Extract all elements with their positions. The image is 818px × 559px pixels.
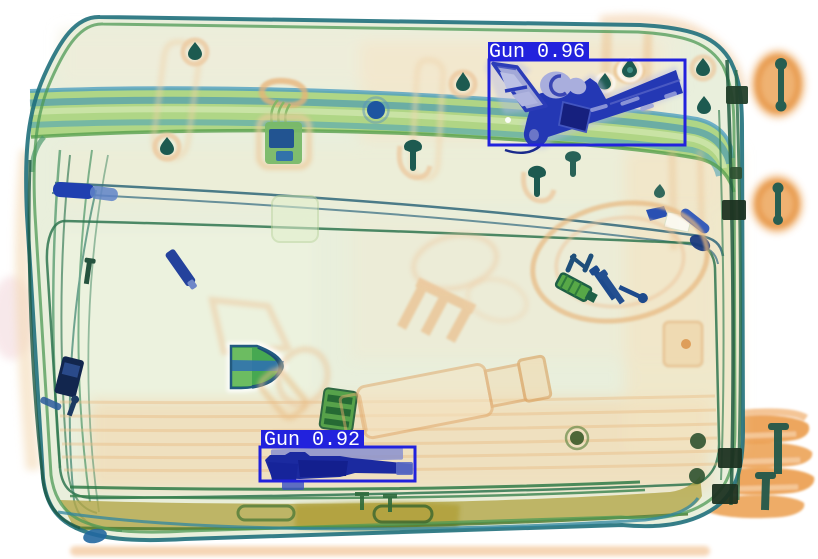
svg-text:Gun 0.92: Gun 0.92 [264,429,360,452]
svg-text:Gun 0.96: Gun 0.96 [489,41,585,64]
